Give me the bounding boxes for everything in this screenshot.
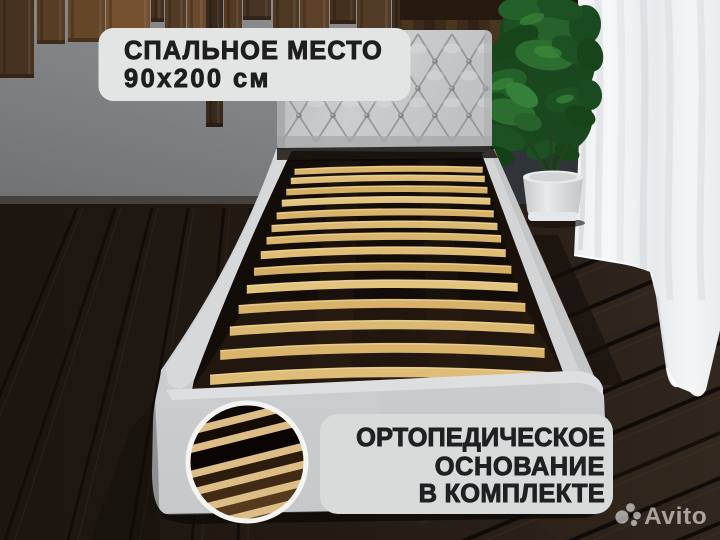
svg-text:СПАЛЬНОЕ МЕСТО: СПАЛЬНОЕ МЕСТО	[124, 37, 383, 65]
svg-text:ОСНОВАНИЕ: ОСНОВАНИЕ	[435, 453, 605, 481]
svg-text:90х200 см: 90х200 см	[124, 65, 271, 93]
svg-text:Avito: Avito	[644, 503, 707, 530]
svg-text:В КОМПЛЕКТЕ: В КОМПЛЕКТЕ	[419, 480, 605, 508]
svg-text:ОРТОПЕДИЧЕСКОЕ: ОРТОПЕДИЧЕСКОЕ	[356, 424, 605, 452]
